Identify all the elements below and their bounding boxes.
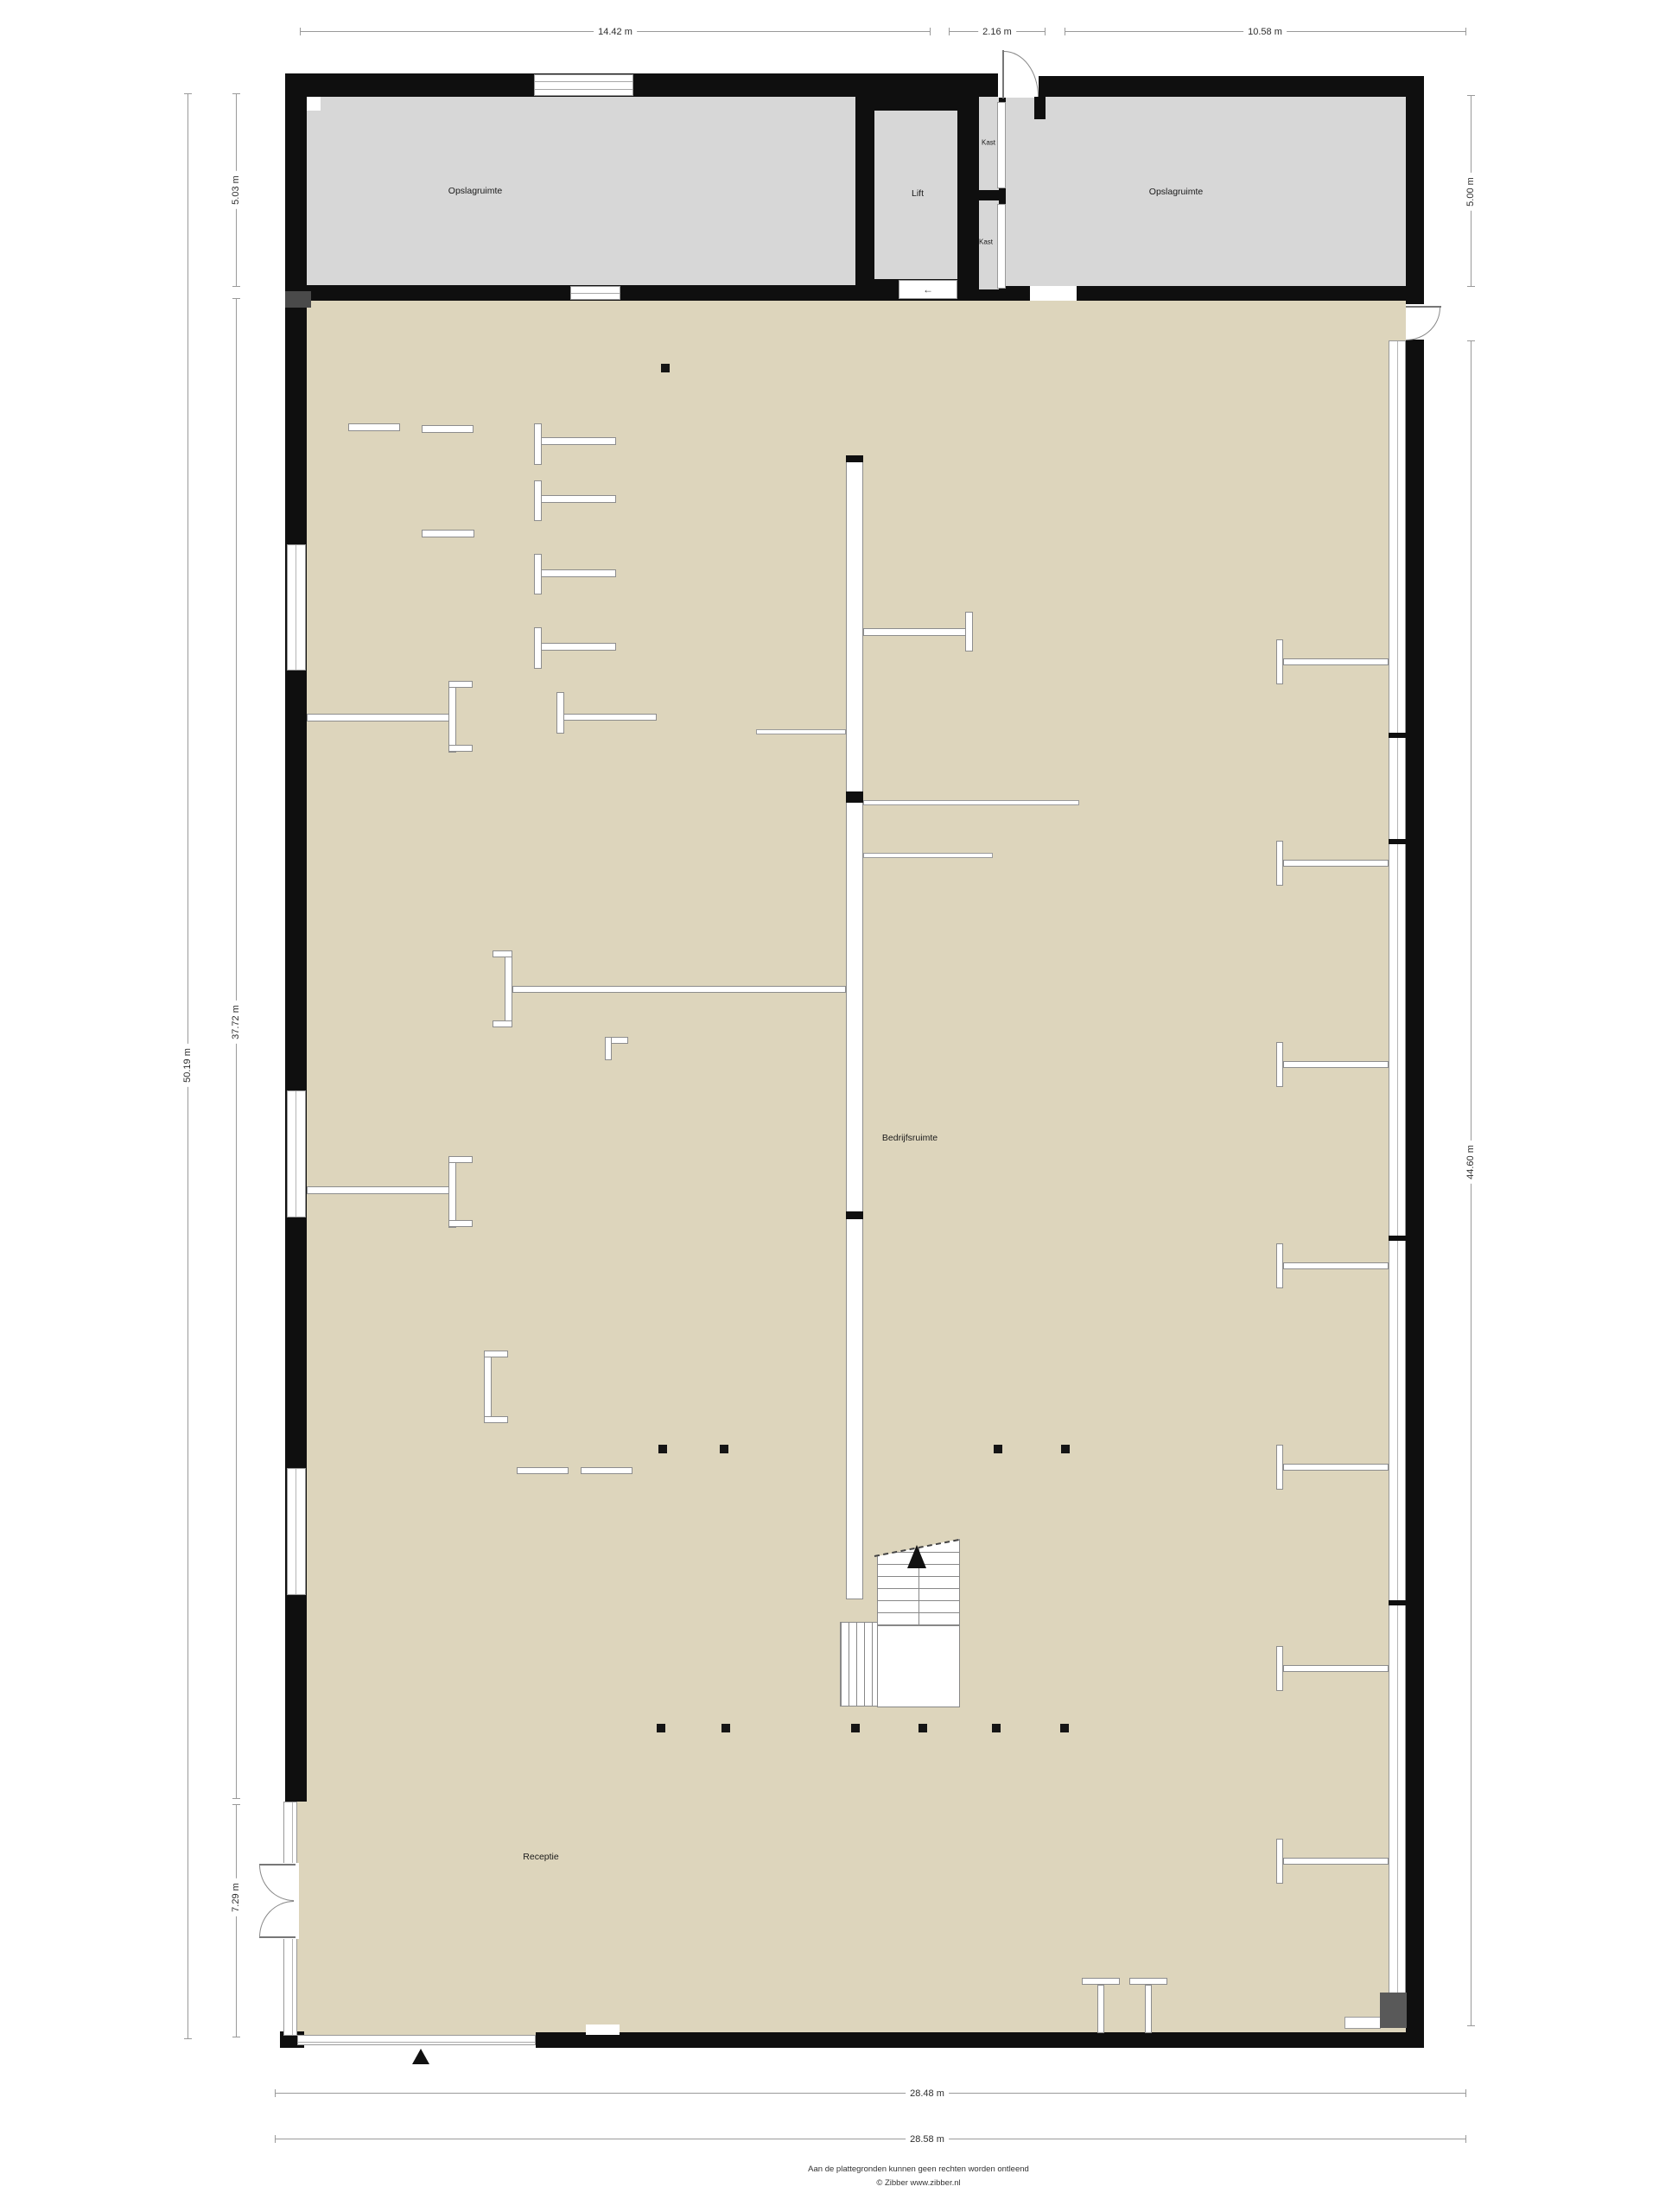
- column-dot: [918, 1724, 927, 1732]
- storage-right-floor: [1006, 97, 1406, 286]
- room-label-storage-right: Opslagruimte: [1149, 187, 1203, 197]
- partition-wall: [1082, 1978, 1120, 1985]
- partition-wall: [605, 1037, 612, 1060]
- outer-wall-top-right: [1006, 76, 1424, 97]
- dimension-line-left-bottom: [236, 1804, 237, 2037]
- dimension-label: 44.60 m: [1465, 1141, 1476, 1184]
- bottom-right-fixture: [1344, 2017, 1381, 2029]
- right-window-strip: [1389, 340, 1406, 2027]
- column-dot: [992, 1724, 1001, 1732]
- top-door-stub: [1034, 97, 1046, 119]
- partition-wall-thin: [863, 853, 993, 858]
- partition-wall: [448, 1156, 456, 1228]
- partition-wall: [517, 1467, 569, 1474]
- dimension-line-left-middle: [236, 298, 237, 1799]
- storage-left-notch: [307, 97, 321, 111]
- partition-wall: [448, 1156, 473, 1163]
- partition-wall: [512, 986, 846, 993]
- partition-wall: [1276, 1042, 1283, 1087]
- partition-wall: [965, 612, 973, 652]
- closet-bottom-sliding-door: [997, 204, 1006, 289]
- partition-wall: [422, 530, 474, 537]
- partition-wall: [541, 437, 616, 445]
- dimension-label: 2.16 m: [978, 27, 1016, 37]
- bottom-right-shaft: [1380, 1993, 1407, 2028]
- partition-wall-thin: [863, 800, 1079, 805]
- column-dot: [658, 1445, 667, 1453]
- spine-wall-junction: [846, 1211, 863, 1219]
- stairs-lower-flight: [840, 1622, 878, 1707]
- footer-copyright: © Zibber www.zibber.nl: [400, 2178, 1437, 2188]
- partition-wall: [484, 1351, 508, 1357]
- right-window-junction: [1389, 839, 1406, 844]
- column-dot: [1061, 1445, 1070, 1453]
- partition-wall: [448, 681, 473, 688]
- partition-wall: [1276, 639, 1283, 684]
- column-dot: [657, 1724, 665, 1732]
- spine-wall-cap: [846, 455, 863, 462]
- partition-wall: [1276, 1839, 1283, 1884]
- dimension-label: 10.58 m: [1243, 27, 1287, 37]
- dimension-label: 7.29 m: [231, 1878, 241, 1916]
- dimension-label: 5.03 m: [231, 171, 241, 209]
- partition-wall: [484, 1351, 492, 1423]
- partition-wall: [448, 681, 456, 753]
- stairs-landing: [877, 1622, 960, 1707]
- partition-wall: [1283, 1061, 1389, 1068]
- right-window-junction: [1389, 733, 1406, 738]
- dimension-label: 50.19 m: [182, 1044, 193, 1087]
- top-wall-window: [534, 74, 633, 96]
- top-door-swing-arc: [1004, 51, 1039, 97]
- dimension-line-bottom-outer: [275, 2139, 1466, 2139]
- spine-wall-junction: [846, 791, 863, 803]
- partition-wall: [448, 745, 473, 752]
- corner-column-dark: [285, 291, 311, 308]
- entrance-door-arc-top: [259, 1865, 294, 1901]
- dimension-label: 28.48 m: [906, 2088, 949, 2099]
- partition-wall: [422, 425, 474, 433]
- partition-wall: [563, 714, 657, 721]
- room-label-storage-left: Opslagruimte: [448, 186, 502, 196]
- partition-wall: [493, 950, 512, 957]
- dimension-label: 28.58 m: [906, 2134, 949, 2145]
- dimension-line-bottom-inner: [275, 2093, 1466, 2094]
- storage-left-sliding-door: [570, 286, 620, 300]
- column-dot: [1060, 1724, 1069, 1732]
- partition-wall: [505, 950, 512, 1027]
- lift-door-arrow-icon: ←: [923, 283, 933, 296]
- partition-wall: [484, 1416, 508, 1423]
- partition-wall: [448, 1220, 473, 1227]
- partition-wall: [307, 1186, 449, 1194]
- floor-plan: ←: [0, 0, 1659, 2212]
- right-door-swing-arc: [1406, 308, 1440, 340]
- left-wall-window: [287, 544, 306, 671]
- column-dot: [851, 1724, 860, 1732]
- spine-wall: [846, 459, 863, 1599]
- dimension-label: 5.00 m: [1465, 173, 1476, 211]
- stairs-up-arrow-icon: [907, 1545, 926, 1568]
- bottom-wall-notch: [586, 2024, 620, 2035]
- lift-door: ←: [899, 280, 957, 299]
- partition-wall: [493, 1020, 512, 1027]
- partition-wall: [1129, 1978, 1167, 1985]
- partition-wall: [1283, 860, 1389, 867]
- partition-wall: [863, 628, 969, 636]
- column-dot: [994, 1445, 1002, 1453]
- column-dot: [720, 1445, 728, 1453]
- room-label-closet-bottom: Kast: [979, 238, 993, 246]
- bottom-glass-wall: [297, 2035, 536, 2045]
- partition-wall: [307, 714, 449, 721]
- partition-wall: [1283, 1262, 1389, 1269]
- partition-wall: [1276, 1646, 1283, 1691]
- partition-wall: [541, 569, 616, 577]
- partition-wall: [1283, 1665, 1389, 1672]
- room-label-closet-top: Kast: [982, 139, 995, 147]
- partition-wall: [541, 495, 616, 503]
- outer-wall-right: [1406, 76, 1424, 2048]
- room-label-reception: Receptie: [523, 1852, 558, 1862]
- partition-wall: [1283, 1858, 1389, 1865]
- entrance-marker-icon: [412, 2049, 429, 2064]
- partition-wall: [1145, 1985, 1152, 2033]
- storage-left-floor: [307, 97, 873, 285]
- partition-wall: [348, 423, 400, 431]
- partition-wall: [1283, 658, 1389, 665]
- column-dot: [721, 1724, 730, 1732]
- room-label-main-hall: Bedrijfsruimte: [882, 1133, 938, 1143]
- partition-wall: [1276, 841, 1283, 886]
- partition-wall: [1283, 1464, 1389, 1471]
- left-wall-window: [287, 1468, 306, 1595]
- right-window-junction: [1389, 1600, 1406, 1605]
- entrance-door-arc-bottom: [259, 1901, 294, 1937]
- dimension-label: 37.72 m: [231, 1001, 241, 1044]
- partition-wall: [541, 643, 616, 651]
- closet-top-sliding-door: [997, 102, 1006, 188]
- column-dot: [661, 364, 670, 372]
- partition-wall-thin: [756, 729, 846, 734]
- partition-wall: [581, 1467, 632, 1474]
- dimension-label: 14.42 m: [594, 27, 637, 37]
- right-window-junction: [1389, 1236, 1406, 1241]
- storage-right-opening: [1030, 286, 1077, 301]
- left-wall-window: [287, 1090, 306, 1217]
- outer-wall-bottom: [536, 2032, 1424, 2048]
- partition-wall: [1276, 1445, 1283, 1490]
- partition-wall: [556, 692, 564, 734]
- partition-wall: [1097, 1985, 1104, 2033]
- room-label-lift: Lift: [912, 188, 924, 199]
- footer-disclaimer: Aan de plattegronden kunnen geen rechten…: [400, 2164, 1437, 2174]
- partition-wall: [1276, 1243, 1283, 1288]
